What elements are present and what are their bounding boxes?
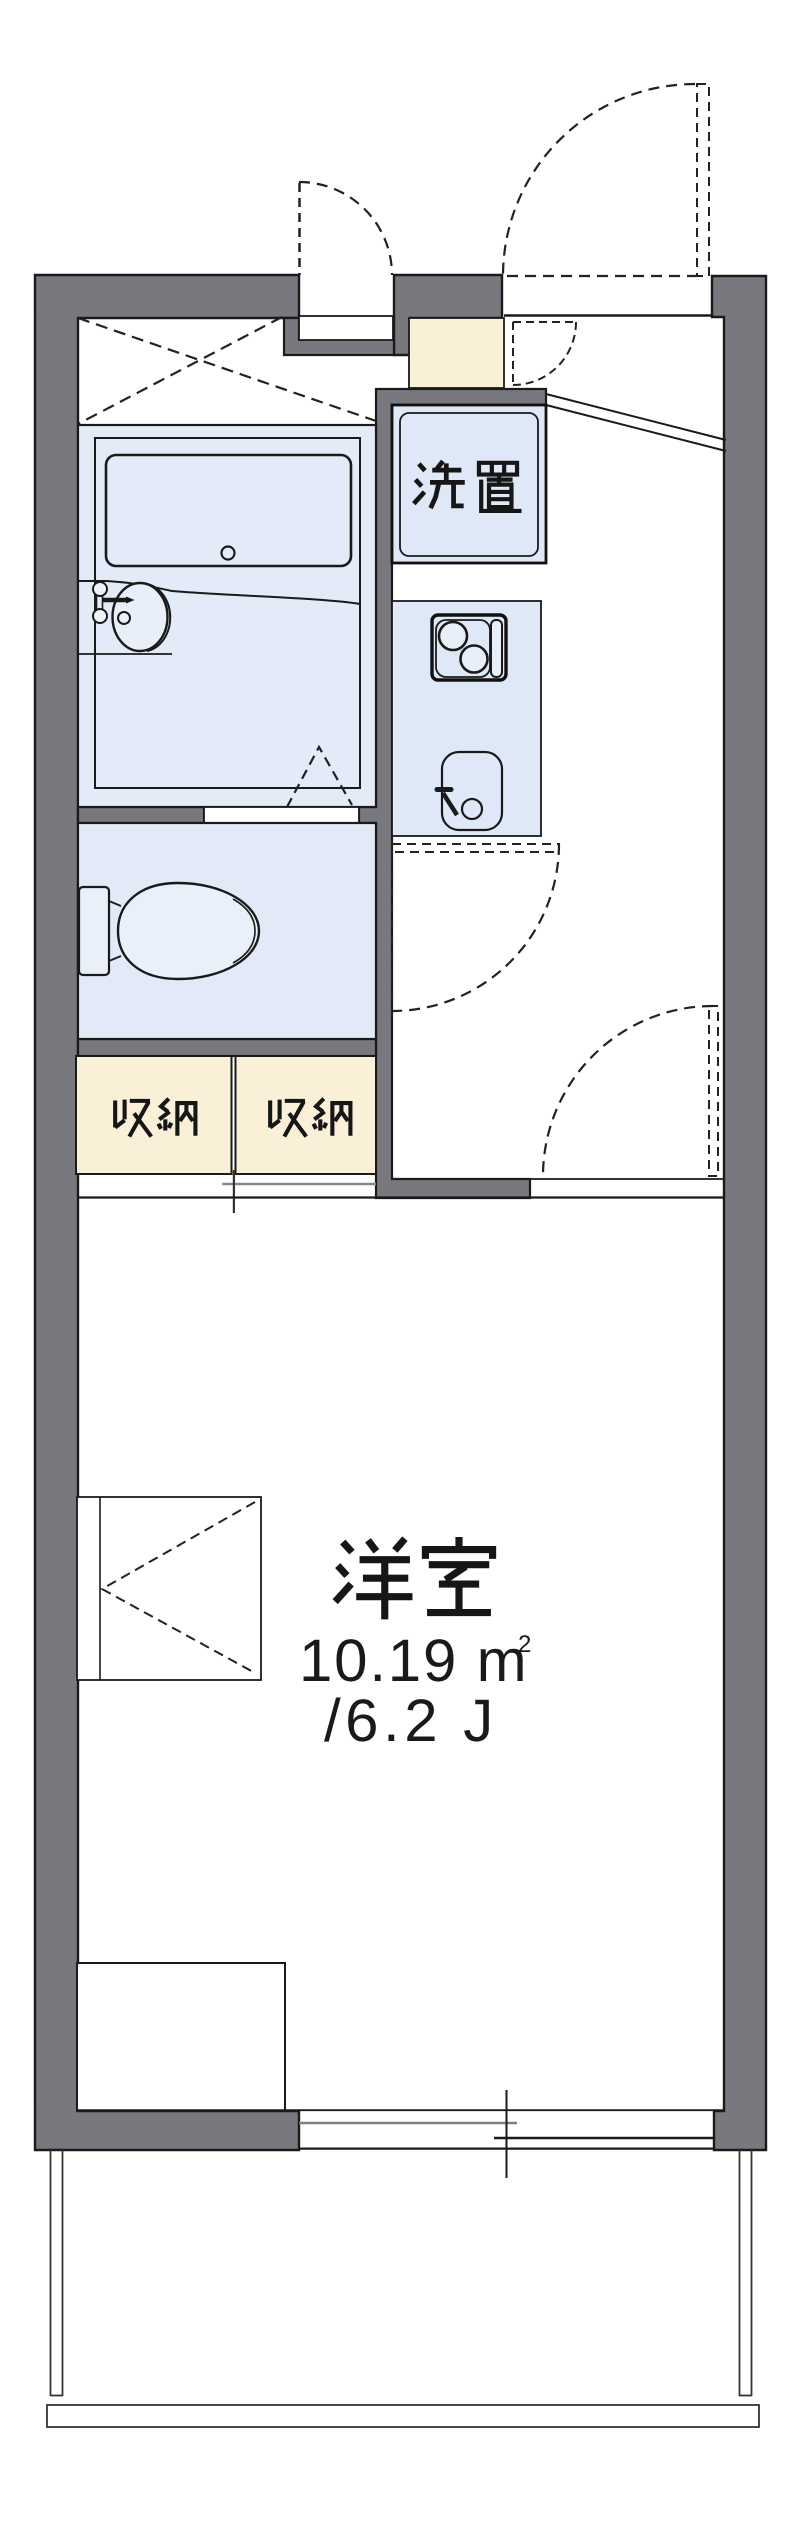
svg-text:10.19 m: 10.19 m [299, 1627, 528, 1694]
svg-text:/6.2 J: /6.2 J [324, 1687, 498, 1754]
svg-text:2: 2 [518, 1631, 531, 1658]
